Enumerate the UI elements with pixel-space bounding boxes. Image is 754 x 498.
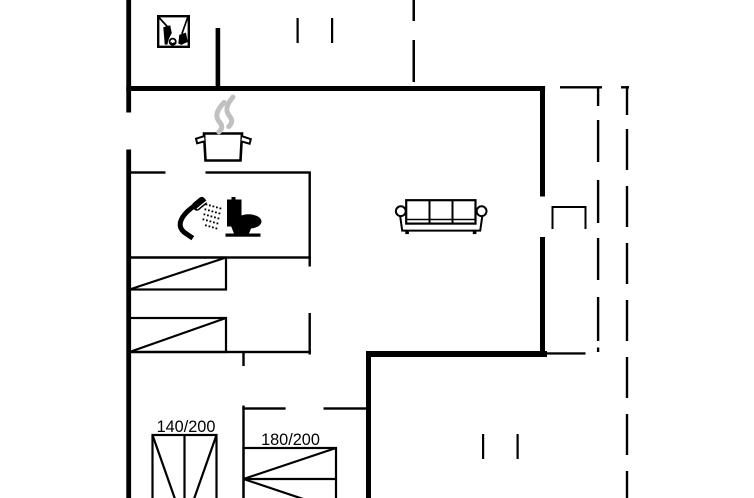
svg-text:140/200: 140/200 [157, 418, 216, 436]
svg-text:180/200: 180/200 [261, 431, 320, 449]
